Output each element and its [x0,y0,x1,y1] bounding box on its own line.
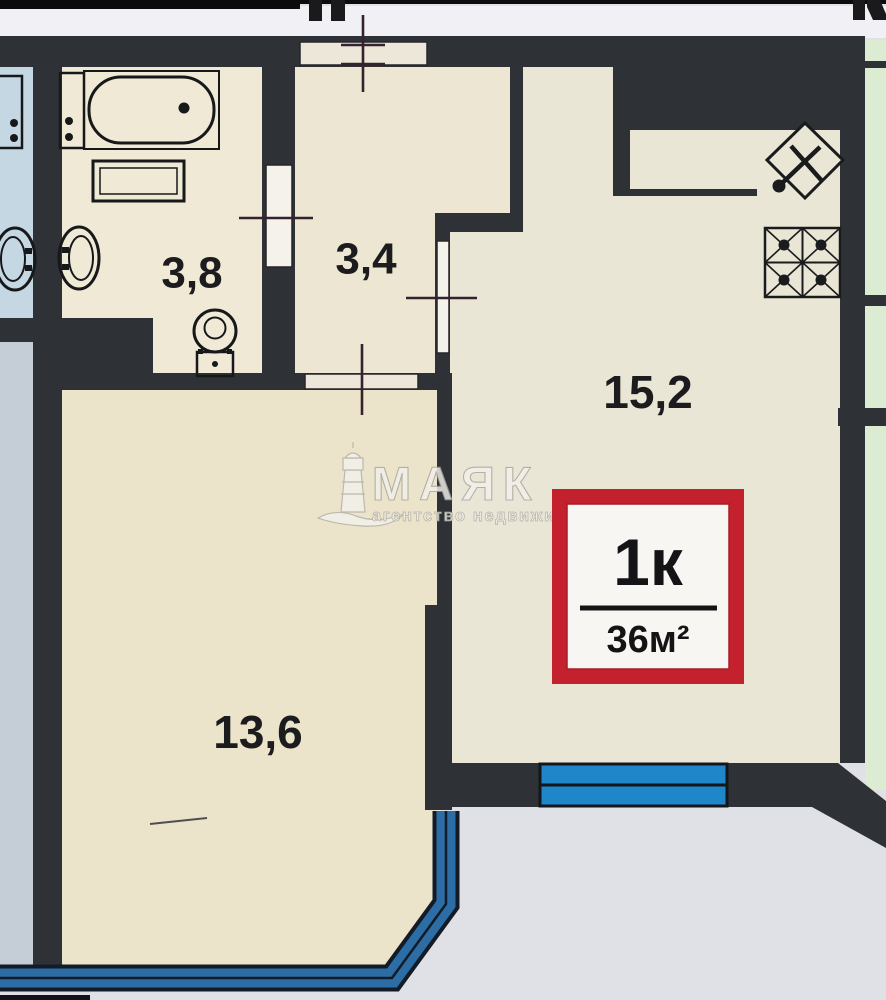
watermark-brand: МАЯК [372,457,540,510]
wall-left [33,40,62,973]
neighbor-room-floor [0,342,33,973]
badge-area-value: 36м² [606,619,689,661]
living-room-area-label: 13,6 [213,706,303,758]
wall-neighbor-green-1 [865,61,886,68]
scan-top-bar [0,0,300,9]
floor-plan-scan: 3,8 3,4 15,2 13,6 МАЯК агентство недвижи… [0,0,886,1000]
wall-kitchen-block [613,36,843,130]
badge-rooms-count: 1к [613,525,684,599]
bathroom-area-label: 3,8 [161,249,222,298]
hallway-area-label: 3,4 [335,235,397,284]
wall-hallway-right-upper [510,65,523,215]
area-badge: 1к 36м² [552,489,744,684]
cropped-glyph-bar [853,0,865,20]
wall-kitchen-counter-edge [630,189,757,196]
faucet-base [773,180,786,193]
cropped-glyph-bar [309,0,322,21]
wall-neighbor-green-3 [838,408,886,426]
wall-between-rooms-lower [425,605,452,810]
cropped-glyph-bar [331,0,345,21]
wall-neighbor-green-2 [865,295,886,306]
scan-white-strip [0,6,886,38]
floor-plan-svg: 3,8 3,4 15,2 13,6 МАЯК агентство недвижи… [0,0,886,1000]
bathroom-door-leaf [266,165,292,267]
kitchen-living-room-area-label: 15,2 [603,366,693,418]
wall-hallway-jog [435,213,523,232]
neighbor-wall [0,318,33,342]
stove-icon [765,228,840,297]
wall-right [840,36,865,763]
wall-kitchen-counter-side [613,130,630,196]
wall-bathroom-shaft [33,318,153,390]
scan-bottom-corner [0,995,90,1000]
neighbor-unit-left [0,67,33,973]
